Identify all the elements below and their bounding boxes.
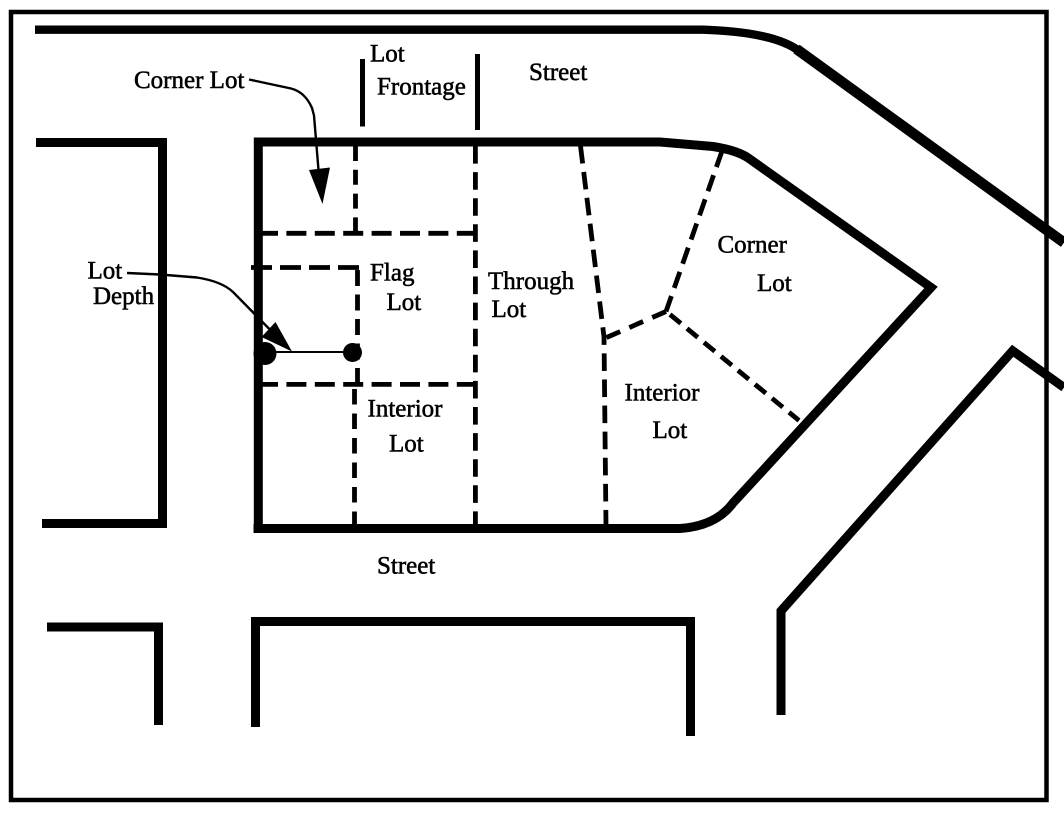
svg-text:Interior: Interior: [625, 380, 701, 407]
svg-text:Corner Lot: Corner Lot: [134, 67, 244, 94]
svg-text:Lot: Lot: [370, 41, 405, 68]
svg-text:Flag: Flag: [370, 260, 415, 287]
svg-text:Interior: Interior: [368, 396, 444, 423]
svg-text:Lot: Lot: [492, 296, 527, 323]
svg-text:Lot: Lot: [757, 270, 792, 297]
svg-text:Depth: Depth: [93, 283, 155, 310]
svg-text:Frontage: Frontage: [377, 74, 466, 101]
svg-text:Lot: Lot: [387, 289, 422, 316]
svg-text:Through: Through: [488, 268, 575, 295]
svg-text:Lot: Lot: [653, 417, 688, 444]
svg-text:Street: Street: [377, 553, 435, 580]
svg-text:Street: Street: [529, 59, 587, 86]
svg-text:Lot: Lot: [389, 431, 424, 458]
svg-text:Corner: Corner: [718, 232, 788, 259]
svg-text:Lot: Lot: [88, 258, 123, 285]
